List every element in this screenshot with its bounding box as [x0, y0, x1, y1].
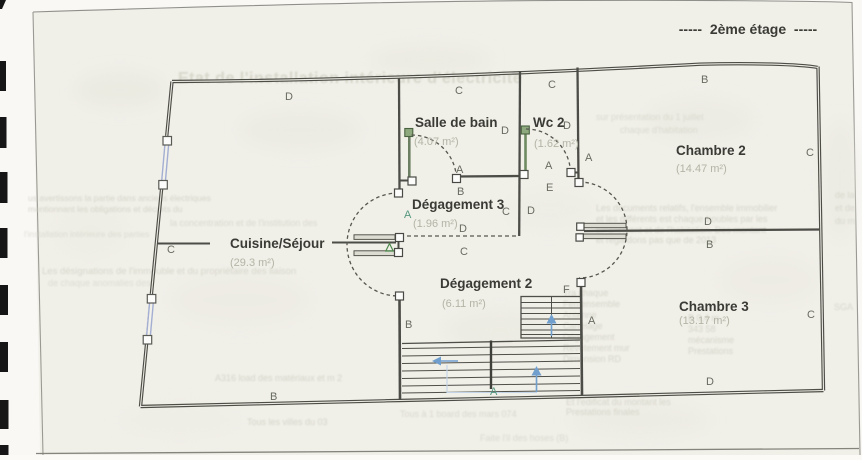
svg-text:la concentration et de l'insti: la concentration et de l'institution des — [170, 218, 318, 228]
svg-text:Chambre 2: Chambre 2 — [676, 143, 746, 158]
svg-text:us avertissons la partie dans: us avertissons la partie dans anciens él… — [28, 193, 211, 203]
svg-text:Cuisine/Séjour: Cuisine/Séjour — [230, 236, 325, 251]
svg-text:C: C — [807, 309, 815, 321]
svg-text:et de: et de — [835, 203, 855, 213]
svg-text:Dégagement 3: Dégagement 3 — [412, 197, 505, 212]
svg-text:Dégagement 2: Dégagement 2 — [440, 276, 532, 291]
svg-text:B: B — [701, 74, 708, 86]
svg-text:Et l'edificat du montant les: Et l'edificat du montant les — [566, 397, 671, 407]
svg-text:A: A — [585, 152, 593, 164]
svg-text:mécanisme: mécanisme — [688, 335, 734, 345]
svg-text:sur présentation du 1 juillet: sur présentation du 1 juillet — [596, 112, 704, 122]
svg-text:C: C — [460, 246, 468, 258]
svg-text:A: A — [588, 315, 596, 327]
svg-text:Tous les villes du 03: Tous les villes du 03 — [247, 417, 328, 427]
svg-text:D: D — [527, 205, 535, 217]
svg-text:A: A — [404, 209, 412, 221]
svg-text:D: D — [459, 223, 467, 235]
svg-text:Revêtement mur: Revêtement mur — [563, 343, 630, 353]
svg-text:Prestations finales: Prestations finales — [566, 407, 640, 417]
svg-text:et les différents est chaque t: et les différents est chaque troubles pa… — [596, 214, 768, 224]
svg-text:----- 2ème étage -----: ----- 2ème étage ----- — [679, 21, 818, 37]
svg-text:C: C — [806, 147, 814, 159]
svg-text:B: B — [405, 319, 412, 331]
svg-text:de la: de la — [835, 190, 855, 200]
svg-text:(4.07 m²): (4.07 m²) — [414, 136, 459, 148]
svg-text:Salle de bain: Salle de bain — [415, 115, 498, 130]
svg-text:Chambre 3: Chambre 3 — [679, 299, 749, 314]
svg-text:D: D — [501, 125, 509, 137]
svg-text:C: C — [167, 244, 175, 256]
svg-text:Dimension RD: Dimension RD — [563, 354, 622, 364]
svg-text:Wc 2: Wc 2 — [533, 115, 565, 130]
svg-text:A: A — [456, 164, 464, 176]
svg-text:D: D — [704, 216, 712, 228]
svg-text:E: E — [546, 182, 553, 194]
svg-text:de chaque anomalies des: de chaque anomalies des — [48, 278, 151, 288]
svg-text:Faite l'il des hoses (B): Faite l'il des hoses (B) — [480, 433, 568, 443]
svg-text:C: C — [455, 85, 463, 97]
svg-text:chaque d'habitation: chaque d'habitation — [620, 125, 698, 135]
svg-text:A316 load des matériaux et m 2: A316 load des matériaux et m 2 — [215, 373, 342, 383]
svg-text:D: D — [706, 376, 714, 388]
svg-text:(29.3 m²): (29.3 m²) — [230, 257, 275, 269]
svg-text:(1.62 m²): (1.62 m²) — [534, 138, 579, 150]
svg-text:l'installation intérieure des: l'installation intérieure des parties — [24, 229, 149, 239]
svg-text:F: F — [563, 284, 570, 296]
svg-text:Prestations: Prestations — [688, 346, 734, 356]
svg-text:A: A — [545, 160, 553, 172]
svg-text:A: A — [490, 386, 498, 398]
svg-text:(6.11 m²): (6.11 m²) — [442, 298, 486, 310]
svg-text:du m: du m — [835, 216, 855, 226]
svg-text:Les documents relatifs, l'ense: Les documents relatifs, l'ensemble immob… — [596, 203, 777, 213]
svg-text:(14.47 m²): (14.47 m²) — [676, 163, 727, 175]
svg-text:SGA: SGA — [834, 302, 853, 312]
svg-text:(13.17 m²): (13.17 m²) — [679, 315, 730, 327]
svg-text:B: B — [270, 391, 277, 403]
svg-text:B: B — [706, 239, 713, 251]
svg-text:C: C — [548, 79, 556, 91]
svg-text:Tous à 1 board des mars 074: Tous à 1 board des mars 074 — [400, 409, 517, 419]
svg-text:(1.96 m²): (1.96 m²) — [413, 218, 458, 230]
svg-text:D: D — [285, 91, 293, 103]
